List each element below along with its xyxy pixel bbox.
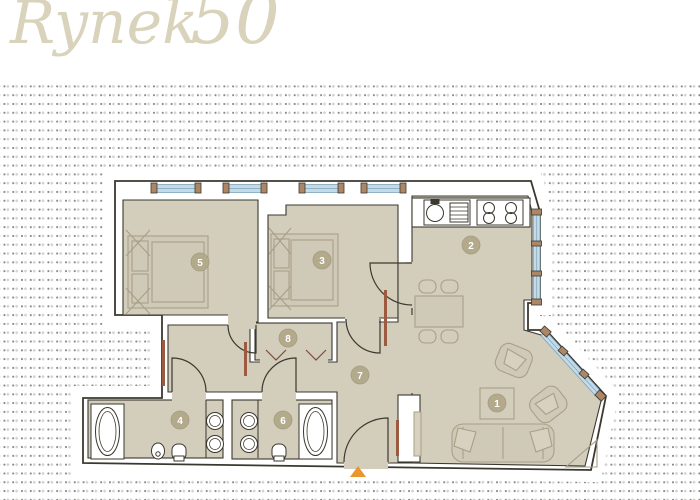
svg-text:5: 5 [197,258,203,269]
opening-bedroom3 [345,314,379,326]
room-badge-4: 4 [171,411,189,429]
radiator-icon [162,340,165,386]
svg-text:1: 1 [494,399,500,410]
room-badge-5: 5 [191,253,209,271]
bed-icon [269,228,338,310]
floor-plan-svg: 1 2 3 4 5 6 7 8 [0,0,700,500]
window-icon [223,183,267,193]
opening-bathroom6 [262,388,296,404]
room-badge-2: 2 [462,236,480,254]
bed-icon [126,230,208,314]
opening-entrance [344,455,388,469]
opening-bathroom4 [172,388,206,404]
window-icon [361,183,406,193]
window-icon [151,183,201,193]
svg-text:7: 7 [357,371,363,382]
svg-text:2: 2 [468,241,474,252]
radiator-icon [396,420,399,456]
room-badge-8: 8 [279,329,297,347]
kitchen-counter [412,198,530,227]
toilet-icon [272,444,286,461]
radiator-icon [384,290,387,346]
toilet-icon [172,444,186,461]
bathtub-icon [299,404,332,459]
radiator-icon [244,342,247,376]
svg-text:8: 8 [285,334,291,345]
room-badge-3: 3 [313,251,331,269]
svg-text:6: 6 [280,416,286,427]
stove-icon [477,200,523,225]
bathtub-icon [91,404,124,459]
console-icon [414,412,421,456]
room-badge-6: 6 [274,411,292,429]
svg-text:3: 3 [319,256,325,267]
opening-bedroom5 [228,312,256,329]
sofa-icon [452,424,554,462]
room-badge-7: 7 [351,366,369,384]
opening-wardrobe8 [260,355,328,366]
bidet-icon [152,443,165,459]
room-badge-1: 1 [488,394,506,412]
window-icon [299,183,344,193]
svg-text:4: 4 [177,416,183,427]
sink-icon [424,200,470,226]
